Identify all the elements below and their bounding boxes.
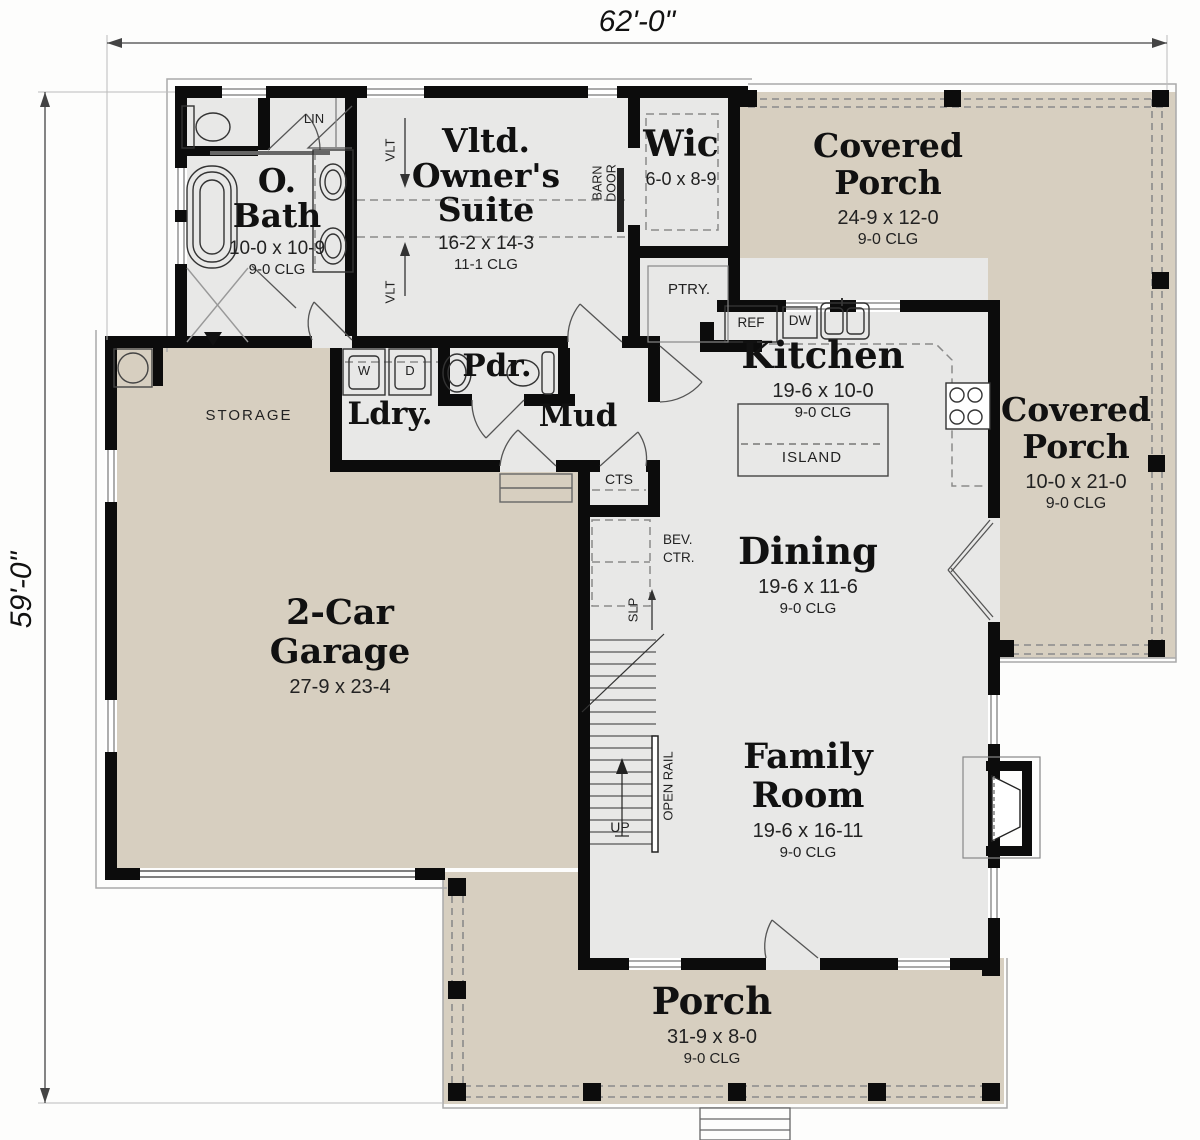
bath-clg: 9-0 CLG xyxy=(229,262,325,278)
dining-dim: 19-6 x 11-6 xyxy=(738,577,878,598)
room-label-bath: O. Bath 10-0 x 10-9 9-0 CLG xyxy=(229,164,325,278)
room-label-covered-porch-right: Covered Porch 10-0 x 21-0 9-0 CLG xyxy=(1001,392,1151,513)
open-rail-line xyxy=(652,736,658,852)
cts-label: CTS xyxy=(605,472,633,487)
vlt-label-bottom: VLT xyxy=(383,281,398,304)
ref-label: REF xyxy=(738,316,765,330)
up-label: UP xyxy=(610,820,629,835)
width-dimension: 62'-0" xyxy=(599,6,675,38)
mud-label: Mud xyxy=(539,400,618,433)
room-label-covered-porch-top: Covered Porch 24-9 x 12-0 9-0 CLG xyxy=(813,128,963,249)
dw-label: DW xyxy=(789,314,812,328)
suite-dim: 16-2 x 14-3 xyxy=(412,234,560,254)
porch-top-dim: 24-9 x 12-0 xyxy=(813,208,963,229)
kitchen-dim: 19-6 x 10-0 xyxy=(741,381,904,402)
porch-right-name: Covered Porch xyxy=(1001,392,1151,466)
room-label-family: Family Room 19-6 x 16-11 9-0 CLG xyxy=(743,738,873,861)
bev-ctr-label: BEV. CTR. xyxy=(663,531,695,567)
slp-label: SLP xyxy=(626,598,641,623)
suite-name: Vltd. Owner's Suite xyxy=(412,124,560,228)
porch-top-clg: 9-0 CLG xyxy=(813,232,963,249)
kitchen-clg: 9-0 CLG xyxy=(741,405,904,421)
lin-label: LIN xyxy=(304,112,324,126)
family-clg: 9-0 CLG xyxy=(743,845,873,861)
storage-label: STORAGE xyxy=(205,408,292,424)
porch-right-clg: 9-0 CLG xyxy=(1001,496,1151,513)
room-label-garage: 2-Car Garage 27-9 x 23-4 xyxy=(270,594,410,698)
porch-clg: 9-0 CLG xyxy=(652,1051,772,1067)
pantry-label: PTRY. xyxy=(668,282,710,298)
height-dimension: 59'-0" xyxy=(5,552,39,628)
room-label-owners-suite: Vltd. Owner's Suite 16-2 x 14-3 11-1 CLG xyxy=(412,124,560,273)
dryer-label: D xyxy=(405,364,414,378)
family-dim: 19-6 x 16-11 xyxy=(743,821,873,842)
suite-clg: 11-1 CLG xyxy=(412,257,560,273)
garage-dim: 27-9 x 23-4 xyxy=(270,677,410,698)
room-label-dining: Dining 19-6 x 11-6 9-0 CLG xyxy=(738,532,878,617)
dining-name: Dining xyxy=(738,532,878,571)
garage-name: 2-Car Garage xyxy=(270,594,410,671)
porch-right-dim: 10-0 x 21-0 xyxy=(1001,472,1151,493)
family-name: Family Room xyxy=(743,738,873,815)
vlt-label-top: VLT xyxy=(383,139,398,162)
island-label: ISLAND xyxy=(782,450,842,466)
porch-top-name: Covered Porch xyxy=(813,128,963,202)
room-label-porch: Porch 31-9 x 8-0 9-0 CLG xyxy=(652,982,772,1067)
porch-dim: 31-9 x 8-0 xyxy=(652,1027,772,1048)
bath-dim: 10-0 x 10-9 xyxy=(229,239,325,259)
bath-name: O. Bath xyxy=(229,164,325,233)
laundry-label: Ldry. xyxy=(347,398,432,431)
room-label-wic: Wic 6-0 x 8-9 xyxy=(643,126,718,189)
wic-name: Wic xyxy=(643,126,718,164)
dining-clg: 9-0 CLG xyxy=(738,601,878,617)
barn-door-label: BARN DOOR xyxy=(591,164,620,202)
kitchen-name: Kitchen xyxy=(741,336,904,375)
wic-dim: 6-0 x 8-9 xyxy=(643,170,718,189)
room-label-kitchen: Kitchen 19-6 x 10-0 9-0 CLG xyxy=(741,336,904,421)
powder-label: Pdr. xyxy=(462,350,531,383)
washer-label: W xyxy=(358,364,370,378)
floor-plan: 62'-0" 59'-0" O. Bath 10-0 x 10-9 9-0 CL… xyxy=(0,0,1200,1140)
porch-name: Porch xyxy=(652,982,772,1021)
open-rail-label: OPEN RAIL xyxy=(661,751,676,820)
entry-steps xyxy=(700,1108,790,1140)
